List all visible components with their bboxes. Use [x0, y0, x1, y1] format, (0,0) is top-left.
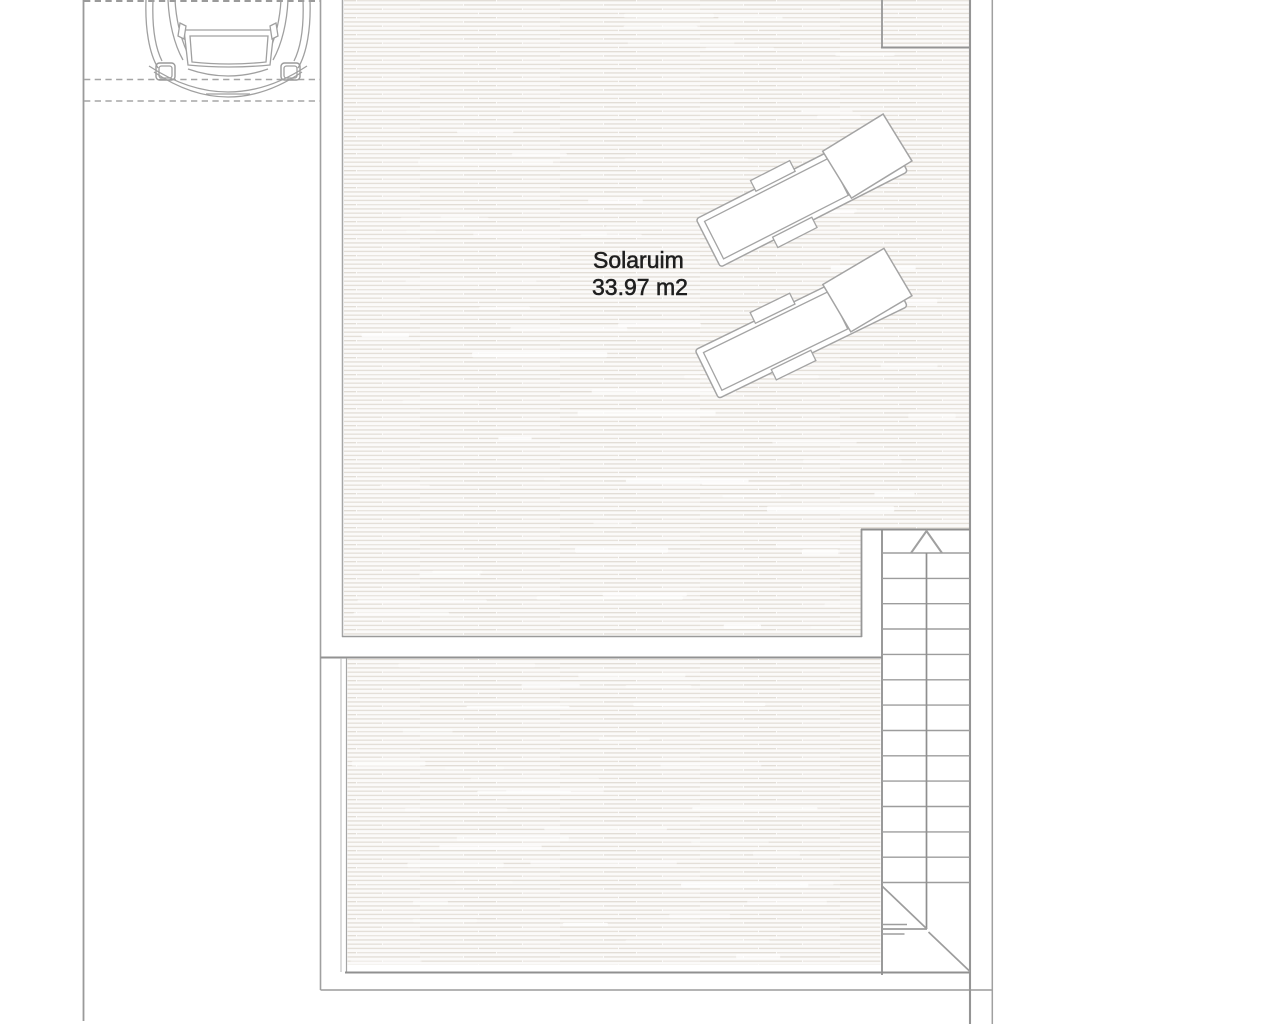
svg-text:33.97 m2: 33.97 m2	[592, 274, 688, 300]
svg-text:Solaruim: Solaruim	[593, 247, 684, 273]
